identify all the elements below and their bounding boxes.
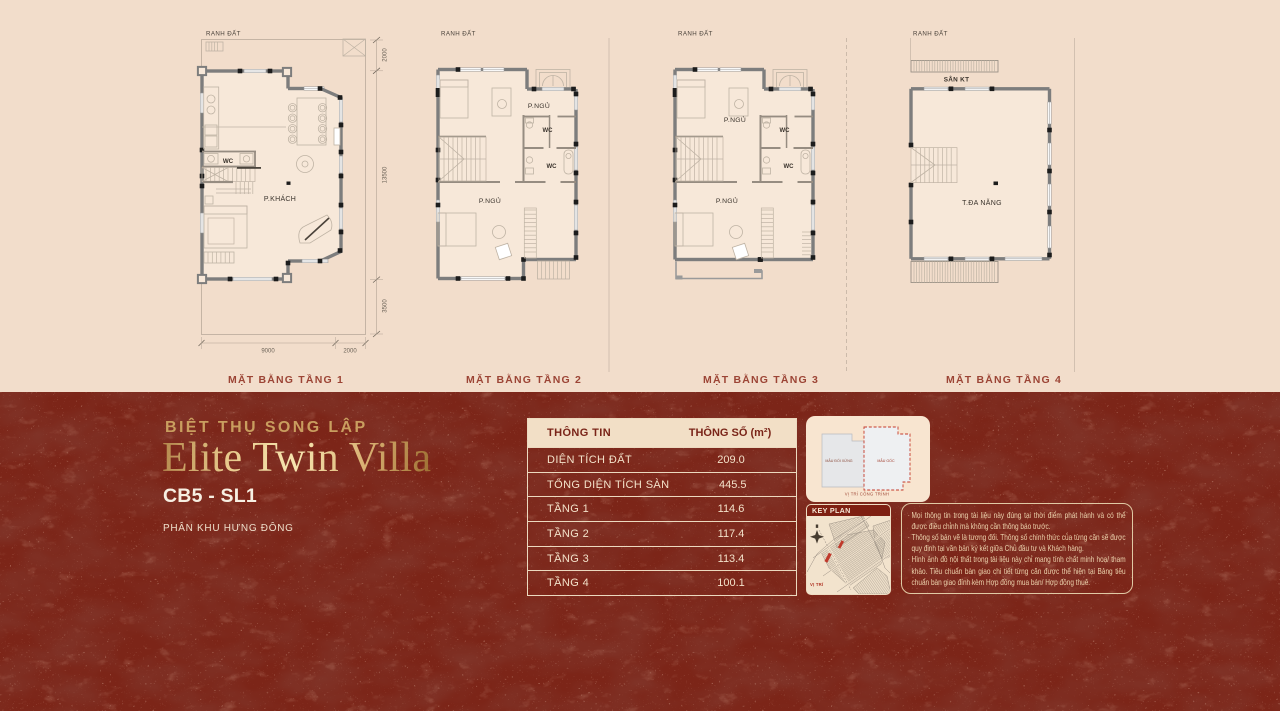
svg-text:VỊ TRÍ CÔNG TRÌNH: VỊ TRÍ CÔNG TRÌNH [845, 492, 890, 497]
svg-text:VỊ TRÍ: VỊ TRÍ [810, 582, 824, 587]
svg-text:RANH ĐẤT: RANH ĐẤT [678, 31, 713, 38]
svg-text:MẶT BẰNG TẦNG 4: MẶT BẰNG TẦNG 4 [946, 373, 1062, 386]
svg-text:RANH ĐẤT: RANH ĐẤT [441, 31, 476, 38]
svg-text:SÂN KT: SÂN KT [944, 75, 970, 84]
svg-text:WC: WC [784, 164, 795, 170]
svg-text:9000: 9000 [261, 349, 275, 355]
svg-text:P.NGỦ: P.NGỦ [479, 196, 501, 205]
svg-text:RANH ĐẤT: RANH ĐẤT [913, 31, 948, 38]
svg-text:MẶT BẰNG TẦNG 2: MẶT BẰNG TẦNG 2 [466, 373, 582, 386]
svg-text:2000: 2000 [383, 48, 389, 62]
svg-text:RANH ĐẤT: RANH ĐẤT [206, 31, 241, 38]
svg-text:WC: WC [543, 128, 554, 134]
svg-text:WC: WC [547, 164, 558, 170]
svg-text:T.ĐA NĂNG: T.ĐA NĂNG [962, 198, 1002, 207]
svg-text:MẶT BẰNG TẦNG 3: MẶT BẰNG TẦNG 3 [703, 373, 819, 386]
svg-text:3500: 3500 [383, 299, 389, 313]
svg-text:MẶT BẰNG TẦNG 1: MẶT BẰNG TẦNG 1 [228, 373, 344, 386]
svg-text:MẪU ĐỐI XỨNG: MẪU ĐỐI XỨNG [825, 458, 852, 463]
svg-text:P.NGỦ: P.NGỦ [724, 115, 746, 124]
svg-text:P.KHÁCH: P.KHÁCH [264, 194, 296, 203]
svg-text:MẪU GỐC: MẪU GỐC [877, 458, 895, 463]
svg-text:2000: 2000 [343, 349, 357, 355]
svg-text:P.NGỦ: P.NGỦ [716, 196, 738, 205]
svg-text:WC: WC [780, 128, 791, 134]
svg-text:13500: 13500 [383, 166, 389, 183]
svg-text:WC: WC [223, 158, 234, 165]
svg-text:P.NGỦ: P.NGỦ [528, 101, 550, 110]
